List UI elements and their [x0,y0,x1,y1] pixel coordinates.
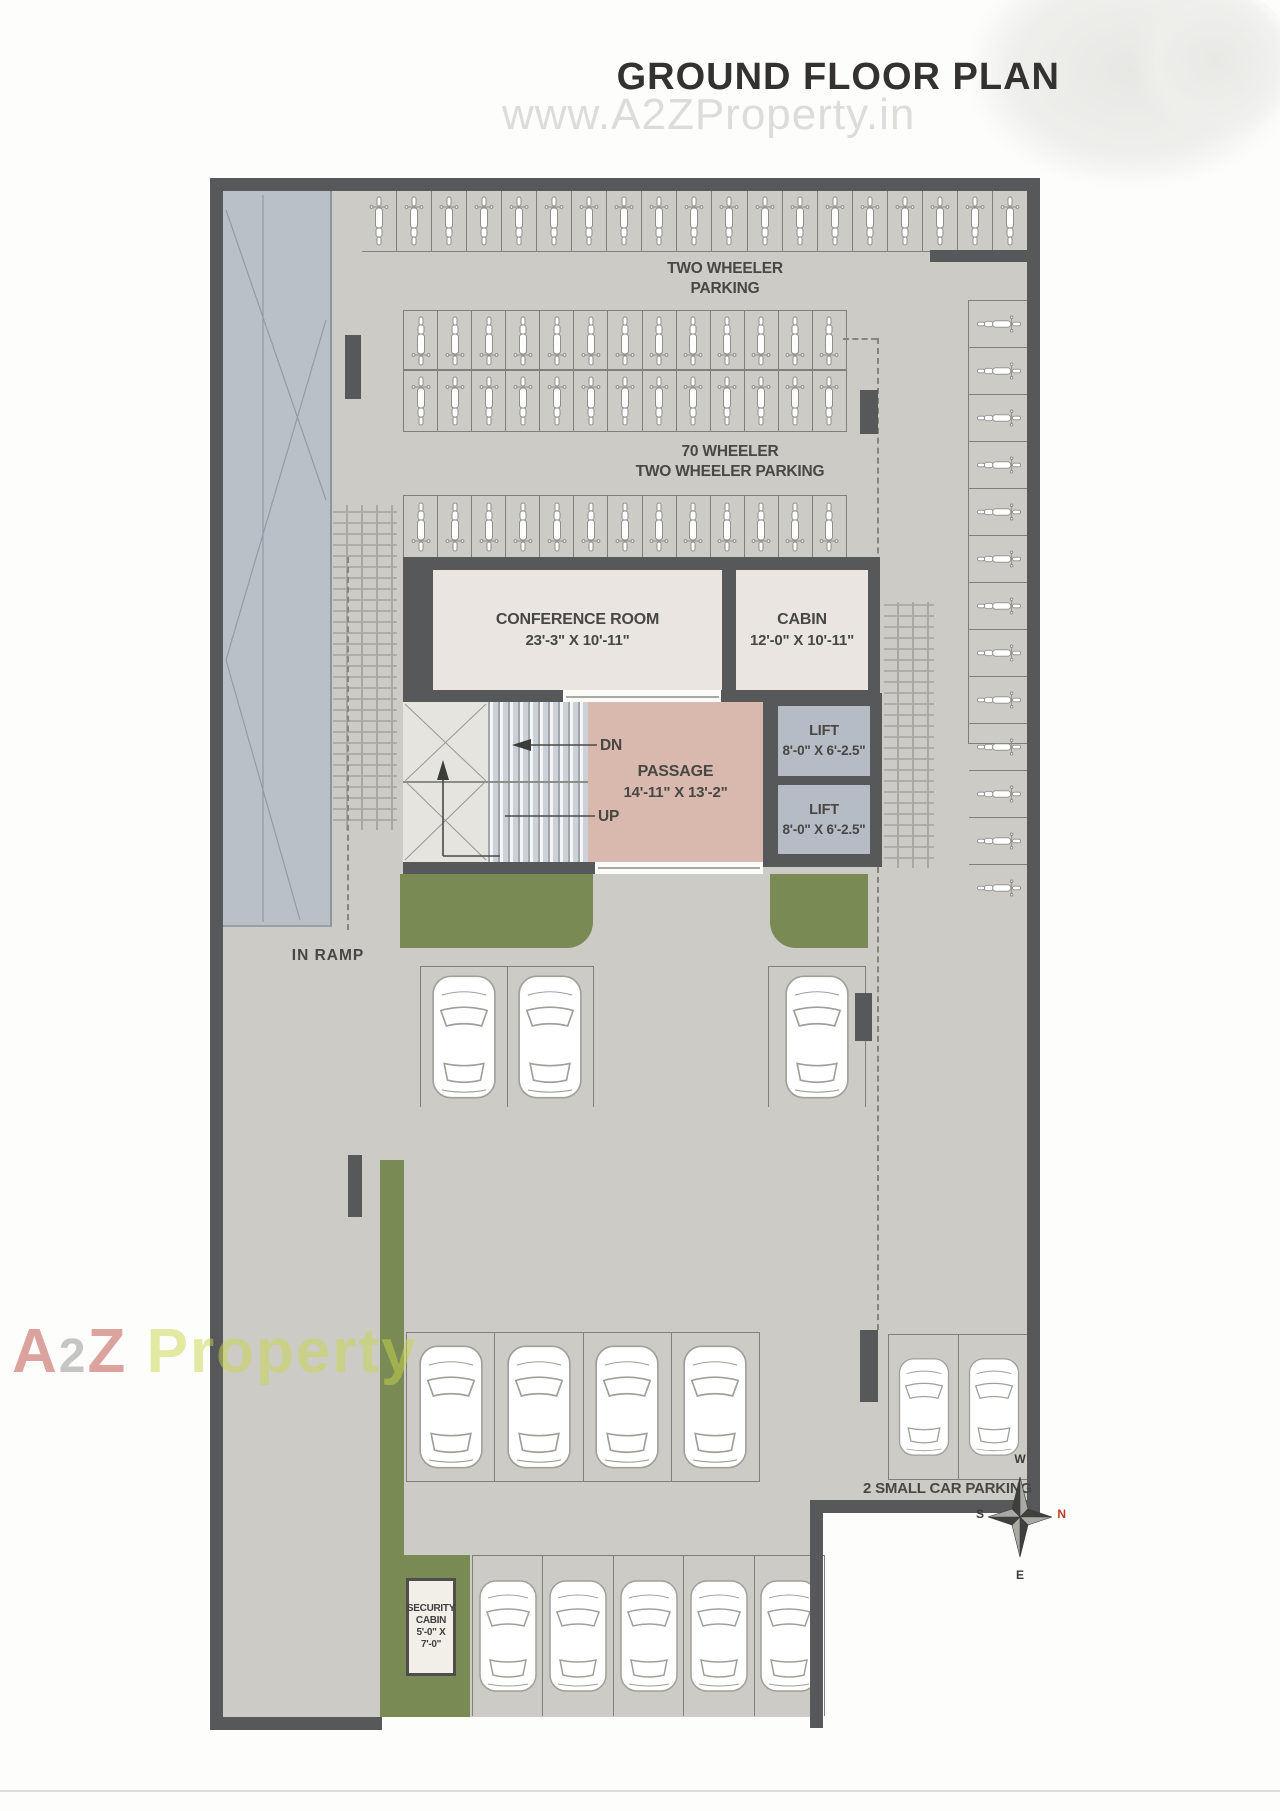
bike-stall [642,311,676,370]
two-wheeler-row-c [403,495,847,559]
motorcycle-icon [581,501,601,553]
bike-stall [676,496,710,558]
bike-stall [711,191,746,251]
room-name: LIFT [809,801,839,820]
bike-stall [969,864,1028,911]
bike-stall [969,817,1028,864]
page-edge-line [0,1790,1280,1792]
compass-north: N [1057,1507,1066,1521]
bike-stall [710,496,744,558]
motorcycle-icon [474,195,494,247]
bike-stall [539,370,573,431]
bike-stall [969,629,1028,676]
motorcycle-icon [649,501,669,553]
outer-wall-right [1027,178,1040,1513]
watermark-logo: A2Z Property [12,1316,418,1387]
motorcycle-icon [976,738,1022,756]
bike-stall [969,488,1028,535]
two-wheeler-row-a [403,310,847,371]
motorcycle-icon [683,315,703,367]
bike-stall [539,311,573,370]
motorcycle-icon [930,195,950,247]
compass-rose: W N E S [974,1452,1066,1582]
motorcycle-icon [825,195,845,247]
wall-segment [930,250,1027,262]
dashed-line [877,867,879,1330]
car-stall [421,967,507,1107]
wall [403,862,595,874]
bike-stall [362,191,396,251]
car-row-1-right [768,966,866,1107]
entry-ramp [223,191,332,927]
motorcycle-icon [683,501,703,553]
wall [870,693,882,867]
motorcycle-icon [513,501,533,553]
motorcycle-icon [439,195,459,247]
motorcycle-icon [411,501,431,553]
motorcycle-icon [976,409,1022,427]
wall [403,570,433,702]
motorcycle-icon [1000,195,1020,247]
bike-stall [969,676,1028,723]
watermark-letter: 2 [59,1330,88,1383]
seventy-wheeler-label: 70 WHEELER TWO WHEELER PARKING [590,442,870,482]
bike-stall [573,311,607,370]
motorcycle-icon [976,315,1022,333]
room-name: CABIN [416,1615,446,1627]
car-icon [476,1565,540,1707]
motorcycle-icon [683,375,703,427]
wall [763,854,882,867]
conference-room: CONFERENCE ROOM 23'-3" X 10'-11" [433,570,722,690]
label-line: TWO WHEELER PARKING [636,463,825,480]
bike-stall [992,191,1027,251]
motorcycle-icon [790,195,810,247]
motorcycle-icon [509,195,529,247]
bike-stall [969,723,1028,770]
motorcycle-icon [976,644,1022,662]
motorcycle-icon [860,195,880,247]
bike-stall [396,191,431,251]
label-line: 70 WHEELER [681,443,778,460]
wall-block [860,1330,878,1402]
motorcycle-icon [445,501,465,553]
passage: PASSAGE 14'-11" X 13'-2" [588,702,763,862]
room-name: CONFERENCE ROOM [496,609,659,630]
motorcycle-icon [479,501,499,553]
bike-stall [812,496,846,558]
room-name: SECURITY [407,1603,455,1615]
lift-2: LIFT 8'-0" X 6'-2.5" [778,785,870,854]
motorcycle-icon [976,785,1022,803]
dashed-line [347,557,349,930]
bike-stall [606,191,641,251]
label-line: PARKING [691,280,760,297]
wall [868,557,880,702]
motorcycle-icon [649,375,669,427]
two-wheeler-column-right [968,300,1029,744]
bike-stall [641,191,676,251]
compass-south: S [976,1507,984,1521]
two-wheeler-row-top [362,191,1027,252]
motorcycle-icon [581,315,601,367]
bike-stall [744,370,778,431]
floor-plan-page: GROUND FLOOR PLAN www.A2ZProperty.in IN … [0,0,1280,1811]
motorcycle-icon [965,195,985,247]
outer-wall-bottom-left [210,1717,382,1730]
room-dimension: 23'-3" X 10'-11" [525,630,629,651]
bike-stall [404,496,437,558]
watermark-word: Property [127,1317,417,1386]
room-dimension: 12'-0" X 10'-11" [750,630,854,651]
bike-stall [607,496,641,558]
outer-wall-step [810,1500,823,1728]
wall-block [860,390,878,434]
wall [763,693,882,706]
car-icon [617,1565,681,1707]
motorcycle-icon [819,501,839,553]
motorcycle-icon [717,315,737,367]
bike-stall [676,311,710,370]
bike-stall [505,496,539,558]
bike-stall [710,370,744,431]
bike-stall [969,535,1028,582]
motorcycle-icon [751,501,771,553]
motorcycle-icon [895,195,915,247]
bike-stall [607,311,641,370]
room-dimension: 14'-11" X 13'-2" [623,782,727,803]
motorcycle-icon [819,315,839,367]
motorcycle-icon [751,315,771,367]
room-name: CABIN [777,609,827,630]
wall [722,557,736,702]
motorcycle-icon [785,375,805,427]
motorcycle-icon [976,503,1022,521]
stair-mid-line [403,781,588,783]
car-stall [613,1556,683,1716]
motorcycle-icon [547,501,567,553]
car-stall [583,1333,671,1481]
bike-stall [812,370,846,431]
in-ramp-label: IN RAMP [258,946,398,966]
car-stall [507,967,594,1107]
motorcycle-icon [614,195,634,247]
motorcycle-icon [411,315,431,367]
motorcycle-icon [615,375,635,427]
car-stall [671,1333,759,1481]
car-row-2-large [406,1332,760,1482]
bike-stall [778,311,812,370]
motorcycle-icon [785,501,805,553]
dashed-line [843,338,877,340]
motorcycle-icon [547,375,567,427]
bike-stall [437,496,471,558]
car-stall [769,967,865,1107]
bike-stall [573,496,607,558]
car-stall [889,1335,958,1479]
motorcycle-icon [976,691,1022,709]
car-icon [896,1351,952,1463]
car-icon [966,1351,1022,1463]
motorcycle-icon [976,550,1022,568]
bike-stall [505,311,539,370]
bike-stall [431,191,466,251]
motorcycle-icon [369,195,389,247]
motorcycle-icon [579,195,599,247]
room-dimension: 5'-0" X 7'-0" [409,1627,453,1651]
motorcycle-icon [404,195,424,247]
wall [763,776,870,785]
car-icon [413,1343,489,1471]
watermark-letter: A [12,1317,59,1386]
door-opening [595,862,763,874]
bike-stall [778,370,812,431]
stair-up-label: UP [598,807,642,827]
bike-stall [922,191,957,251]
car-icon [512,973,588,1101]
motorcycle-icon [649,315,669,367]
motorcycle-icon [544,195,564,247]
bike-stall [817,191,852,251]
bike-stall [969,347,1028,394]
bike-stall [437,311,471,370]
bike-stall [969,301,1028,347]
two-wheeler-row-b [403,369,847,432]
bike-stall [471,496,505,558]
hatch-strip-left [333,505,397,830]
hatch-strip-right [884,602,934,868]
bike-stall [573,370,607,431]
car-icon [687,1565,751,1707]
motorcycle-icon [717,375,737,427]
bike-stall [969,441,1028,488]
watermark-letter: Z [87,1317,127,1386]
bike-stall [505,370,539,431]
wall [403,690,563,702]
room-name: PASSAGE [638,761,714,782]
compass-west: W [974,1452,1066,1466]
motorcycle-icon [684,195,704,247]
bike-stall [778,496,812,558]
car-row-1-left [420,966,594,1107]
motorcycle-icon [445,375,465,427]
motorcycle-icon [976,832,1022,850]
motorcycle-icon [755,195,775,247]
bike-stall [501,191,536,251]
compass-star-icon [985,1474,1055,1560]
motorcycle-icon [976,879,1022,897]
bike-stall [571,191,606,251]
motorcycle-icon [547,315,567,367]
outer-wall-top [210,178,1040,191]
compass-east: E [974,1568,1066,1582]
watercolor-blob [1090,0,1280,180]
motorcycle-icon [479,315,499,367]
bike-stall [539,496,573,558]
bike-stall [710,311,744,370]
car-icon [779,973,855,1101]
car-icon [426,973,502,1101]
watermark-text: www.A2ZProperty.in [502,90,915,140]
motorcycle-icon [411,375,431,427]
motorcycle-icon [513,375,533,427]
motorcycle-icon [615,501,635,553]
cabin-room: CABIN 12'-0" X 10'-11" [736,570,868,690]
wall-block [345,335,361,399]
bike-stall [676,370,710,431]
car-icon [589,1343,665,1471]
motorcycle-icon [581,375,601,427]
bike-stall [404,370,437,431]
motorcycle-icon [785,315,805,367]
car-stall [683,1556,753,1716]
label-line: TWO WHEELER [667,260,783,277]
stair-down-label: DN [600,736,644,756]
outer-wall-left [210,178,223,1730]
motorcycle-icon [976,456,1022,474]
two-wheeler-parking-label: TWO WHEELER PARKING [625,259,825,299]
bike-stall [969,770,1028,817]
bike-stall [676,191,711,251]
bike-stall [812,311,846,370]
bike-stall [466,191,501,251]
bike-stall [536,191,571,251]
security-cabin: SECURITY CABIN 5'-0" X 7'-0" [406,1578,456,1676]
bike-stall [887,191,922,251]
room-name: LIFT [809,722,839,741]
bike-stall [744,311,778,370]
car-row-bottom [472,1555,825,1716]
bike-stall [969,582,1028,629]
lift-1: LIFT 8'-0" X 6'-2.5" [778,706,870,776]
bike-stall [437,370,471,431]
bike-stall [471,370,505,431]
bike-stall [957,191,992,251]
motorcycle-icon [479,375,499,427]
car-icon [546,1565,610,1707]
room-dimension: 8'-0" X 6'-2.5" [782,820,865,839]
car-stall [542,1556,612,1716]
wall-block [348,1155,362,1217]
car-stall [494,1333,582,1481]
bike-stall [744,496,778,558]
motorcycle-icon [615,315,635,367]
bike-stall [852,191,887,251]
bike-stall [642,370,676,431]
car-icon [677,1343,753,1471]
motorcycle-icon [445,315,465,367]
bike-stall [969,394,1028,441]
motorcycle-icon [819,375,839,427]
motorcycle-icon [976,597,1022,615]
motorcycle-icon [976,362,1022,380]
wall [403,557,880,570]
room-dimension: 8'-0" X 6'-2.5" [782,741,865,760]
landscape-green-right [770,874,868,948]
bike-stall [642,496,676,558]
bike-stall [747,191,782,251]
motorcycle-icon [513,315,533,367]
bike-stall [471,311,505,370]
motorcycle-icon [717,501,737,553]
car-icon [501,1343,577,1471]
bike-stall [404,311,437,370]
motorcycle-icon [751,375,771,427]
car-stall [407,1333,494,1481]
motorcycle-icon [719,195,739,247]
wall-block [855,993,872,1041]
door-opening [563,690,721,702]
motorcycle-icon [649,195,669,247]
car-stall [473,1556,542,1716]
bike-stall [607,370,641,431]
landscape-green-left [400,874,593,948]
bike-stall [782,191,817,251]
